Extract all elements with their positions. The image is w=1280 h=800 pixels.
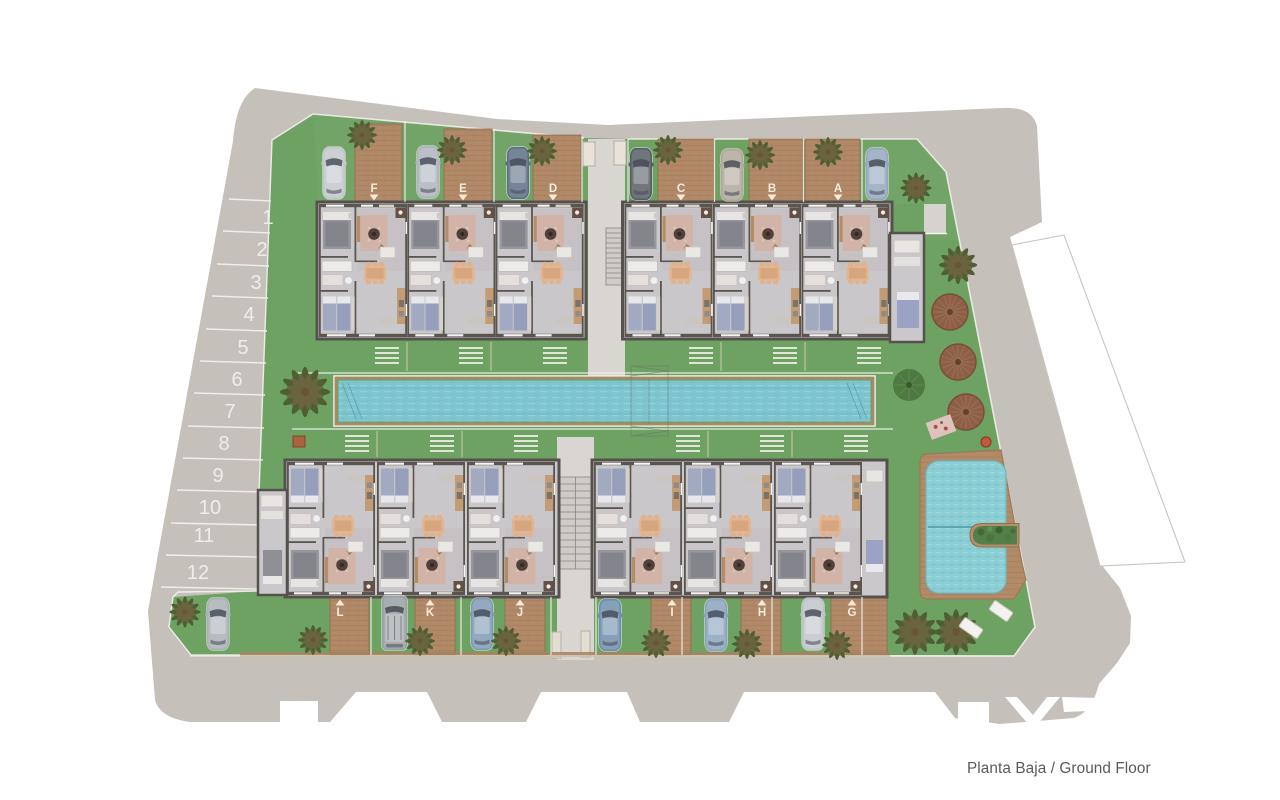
svg-text:7: 7 [224, 401, 235, 423]
svg-text:B: B [768, 183, 776, 195]
svg-text:3: 3 [250, 272, 261, 294]
svg-text:1: 1 [262, 207, 273, 229]
svg-text:J: J [517, 607, 523, 619]
svg-text:A: A [834, 183, 842, 195]
svg-text:10: 10 [199, 497, 221, 519]
svg-text:D: D [549, 183, 557, 195]
svg-text:E: E [459, 183, 467, 195]
svg-text:8: 8 [218, 433, 229, 455]
svg-text:F: F [370, 183, 377, 195]
svg-text:I: I [670, 607, 673, 619]
svg-text:9: 9 [212, 465, 223, 487]
svg-text:4: 4 [243, 304, 254, 326]
svg-text:2: 2 [256, 239, 267, 261]
svg-text:H: H [758, 607, 766, 619]
svg-text:11: 11 [194, 525, 215, 547]
svg-text:G: G [848, 607, 857, 619]
svg-text:C: C [677, 183, 685, 195]
svg-text:6: 6 [231, 369, 242, 391]
svg-text:K: K [426, 607, 435, 619]
svg-text:5: 5 [237, 337, 248, 359]
svg-text:12: 12 [187, 562, 209, 584]
svg-text:Planta Baja / Ground Floor: Planta Baja / Ground Floor [967, 760, 1151, 777]
svg-text:L: L [336, 607, 343, 619]
